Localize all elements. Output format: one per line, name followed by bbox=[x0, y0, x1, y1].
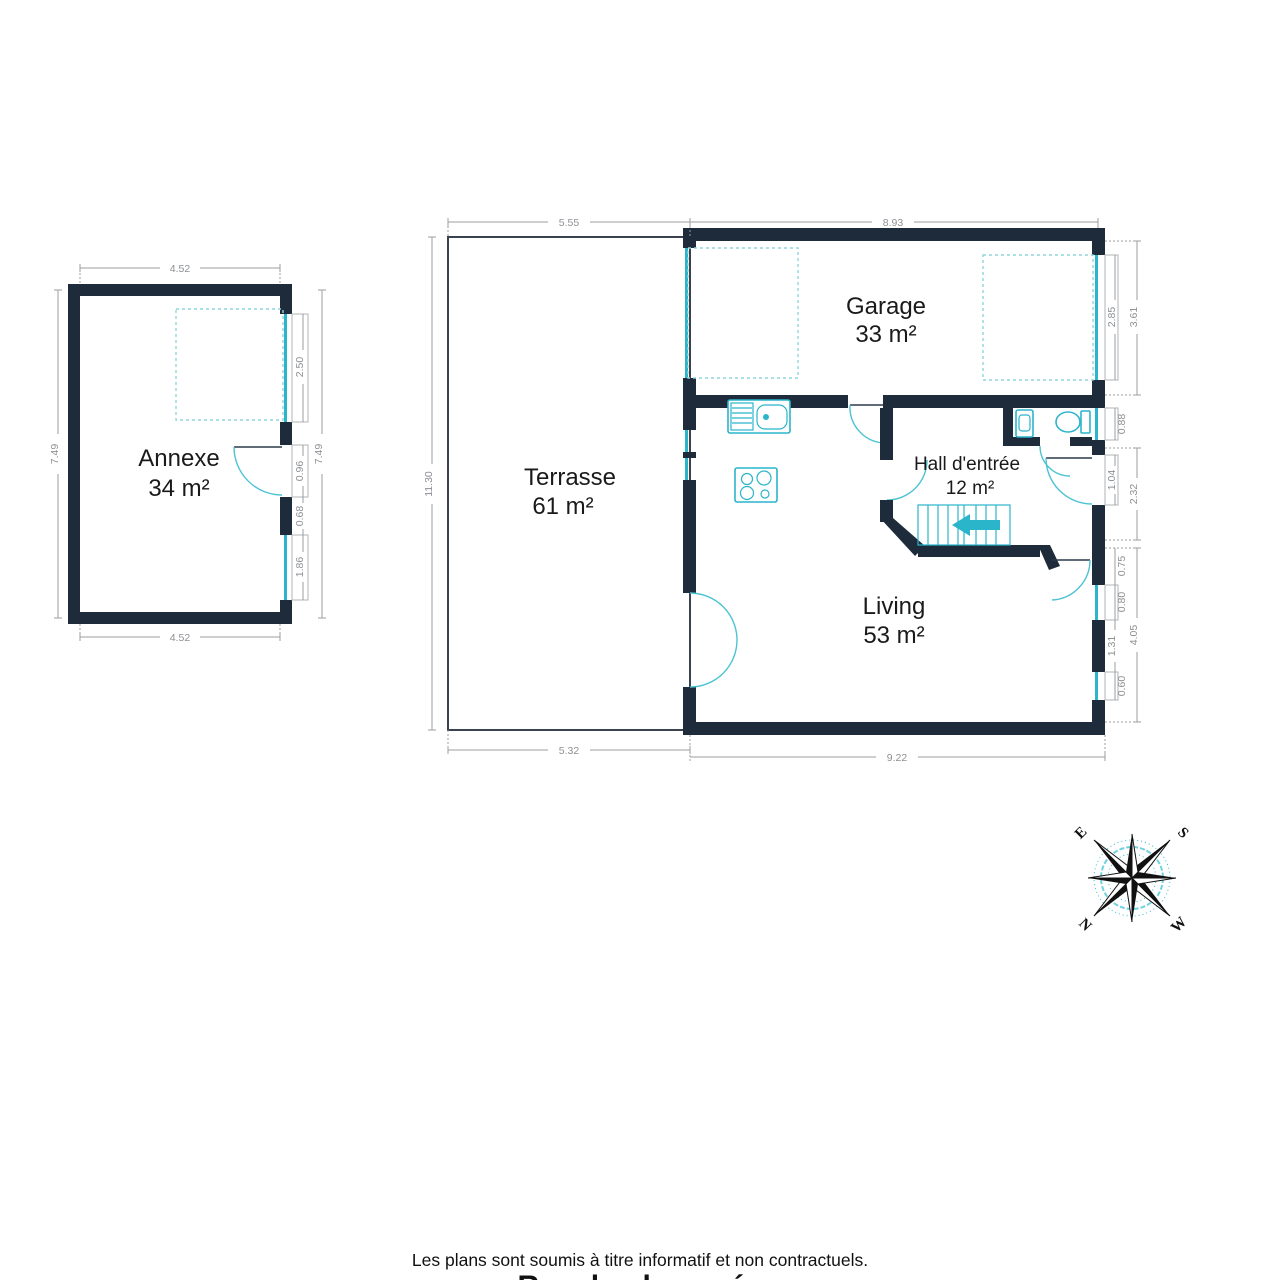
garage-door-east bbox=[1095, 255, 1098, 380]
toilet-icon bbox=[1056, 411, 1090, 433]
dim-annexe-door: 0.96 bbox=[294, 461, 306, 482]
wc-sink-icon bbox=[1016, 410, 1033, 437]
annexe-window-bottom bbox=[284, 535, 287, 600]
dim-main-top-garage: 8.93 bbox=[883, 217, 904, 229]
living-room-area: 53 m² bbox=[863, 622, 924, 649]
dim-garage-wall: 3.61 bbox=[1128, 307, 1140, 328]
dim-annexe-top: 4.52 bbox=[170, 263, 191, 275]
dim-window-b: 0.60 bbox=[1116, 676, 1128, 697]
wc-window bbox=[1095, 408, 1098, 440]
dim-main-left: 11.30 bbox=[423, 471, 435, 497]
garage-room-name: Garage bbox=[846, 293, 926, 320]
dim-annexe-left: 7.49 bbox=[49, 444, 61, 465]
annexe-door bbox=[234, 447, 282, 495]
compass-letter-e: E bbox=[1072, 824, 1090, 842]
terrasse-room-name: Terrasse bbox=[524, 464, 616, 491]
plan-disclaimer: Les plans sont soumis à titre informatif… bbox=[0, 1250, 1280, 1271]
garage-door-interior bbox=[850, 405, 883, 443]
dim-pier-a: 0.75 bbox=[1116, 556, 1128, 577]
kitchen-window-west2 bbox=[685, 458, 688, 480]
living-window-b bbox=[1095, 672, 1098, 700]
compass-letter-n: N bbox=[1075, 916, 1094, 935]
compass-letter-s: S bbox=[1174, 825, 1191, 842]
compass-rose: E S W N bbox=[1072, 824, 1191, 936]
annexe-building: Annexe 34 m² bbox=[68, 284, 308, 624]
compass-star bbox=[1088, 834, 1176, 922]
stairs bbox=[918, 505, 1010, 545]
dim-annexe-window-top: 2.50 bbox=[294, 357, 306, 378]
living-room-name: Living bbox=[863, 593, 926, 620]
plan-title: Rez-de-chaussée bbox=[0, 1270, 1280, 1280]
kitchen-sink-icon bbox=[728, 400, 790, 433]
dim-main-bottom-living: 9.22 bbox=[887, 752, 908, 764]
floorplan-svg: Annexe 34 m² 4.52 4.52 7.49 7.49 2.50 0.… bbox=[0, 0, 1280, 1280]
cooktop-icon bbox=[735, 468, 777, 502]
garage-room-area: 33 m² bbox=[855, 321, 916, 348]
dim-entry-door: 1.04 bbox=[1106, 470, 1118, 491]
terrasse-room-area: 61 m² bbox=[532, 493, 593, 520]
garage-bay-left bbox=[688, 248, 798, 378]
entry-door bbox=[1046, 458, 1092, 504]
annexe-dashed-area bbox=[176, 309, 283, 420]
dim-annexe-window-bottom: 1.86 bbox=[294, 557, 306, 578]
dim-main-top-terrasse: 5.55 bbox=[559, 217, 580, 229]
compass-letter-w: W bbox=[1168, 914, 1190, 936]
dim-window-a: 0.80 bbox=[1116, 592, 1128, 613]
floorplan-page: Annexe 34 m² 4.52 4.52 7.49 7.49 2.50 0.… bbox=[0, 0, 1280, 1280]
dim-living-wall: 4.05 bbox=[1128, 625, 1140, 646]
hall-room-area: 12 m² bbox=[946, 478, 995, 499]
dim-entry-wall: 2.32 bbox=[1128, 484, 1140, 505]
kitchen-window-west bbox=[685, 430, 688, 452]
annexe-room-area: 34 m² bbox=[148, 475, 209, 502]
terrasse-french-doors bbox=[690, 593, 737, 687]
dim-pier-b: 1.31 bbox=[1106, 636, 1118, 657]
dim-annexe-bottom: 4.52 bbox=[170, 632, 191, 644]
living-window-a bbox=[1095, 585, 1098, 620]
garage-bay-right bbox=[983, 255, 1093, 380]
annexe-room-name: Annexe bbox=[138, 445, 219, 472]
dim-annexe-right: 7.49 bbox=[313, 444, 325, 465]
hall-room-name: Hall d'entrée bbox=[914, 454, 1020, 475]
dim-garage-door: 2.85 bbox=[1106, 307, 1118, 328]
main-building: Terrasse 61 m² Garage 33 m² Hall d'entré… bbox=[448, 228, 1118, 735]
dim-wc-window: 0.88 bbox=[1116, 414, 1128, 435]
dim-main-bottom-terrasse: 5.32 bbox=[559, 745, 580, 757]
dim-annexe-pier: 0.68 bbox=[294, 506, 306, 527]
annexe-window-top bbox=[284, 314, 287, 422]
